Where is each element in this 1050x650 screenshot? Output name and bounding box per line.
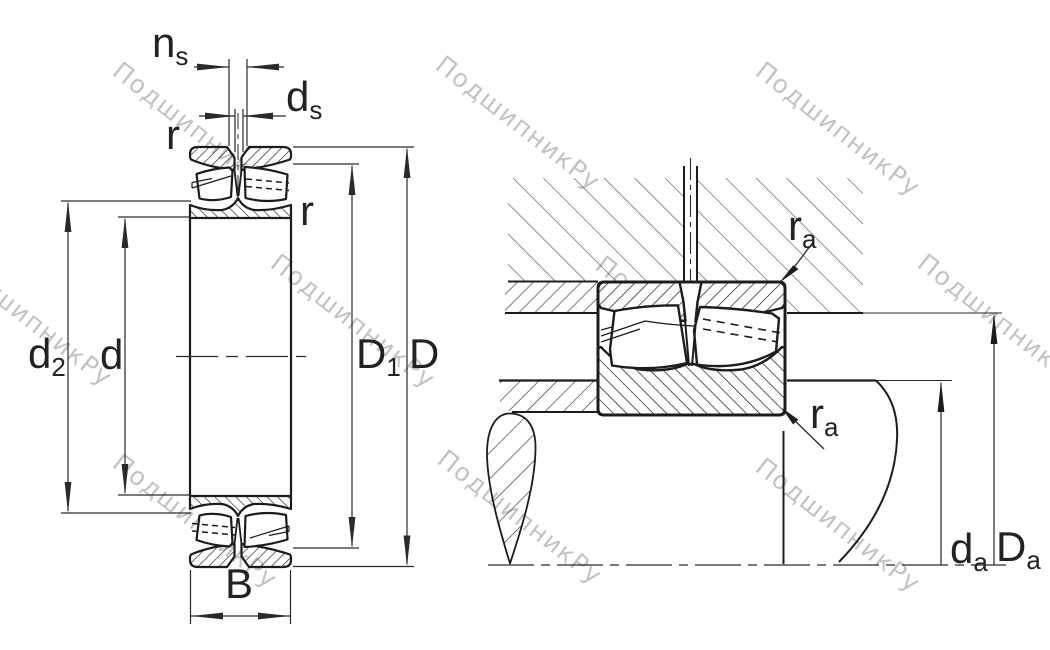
label-ns: ns (152, 22, 188, 69)
label-D: D (409, 333, 439, 375)
label-Da: Da (996, 526, 1041, 573)
shaft-shoulder-section (500, 382, 598, 412)
shaft-breakout (487, 414, 536, 564)
label-r-inner: r (300, 190, 314, 232)
label-d: d (100, 334, 123, 376)
label-r-outer: r (166, 114, 180, 156)
label-ra-top: ra (788, 205, 816, 252)
technical-drawing (0, 0, 1050, 650)
label-d2: d2 (28, 333, 66, 380)
label-D1: D1 (356, 333, 401, 380)
right-figure-mounted-bearing (487, 158, 1006, 565)
label-da: da (950, 528, 988, 575)
shaft-shoulder-curve (839, 381, 897, 563)
label-ra-bottom: ra (810, 393, 838, 440)
label-ds: ds (286, 76, 322, 123)
housing-band (505, 283, 598, 313)
label-B: B (225, 563, 253, 605)
bearing-drawing-page: ПодшипникРу ПодшипникРу ПодшипникРу Подш… (0, 0, 1050, 650)
